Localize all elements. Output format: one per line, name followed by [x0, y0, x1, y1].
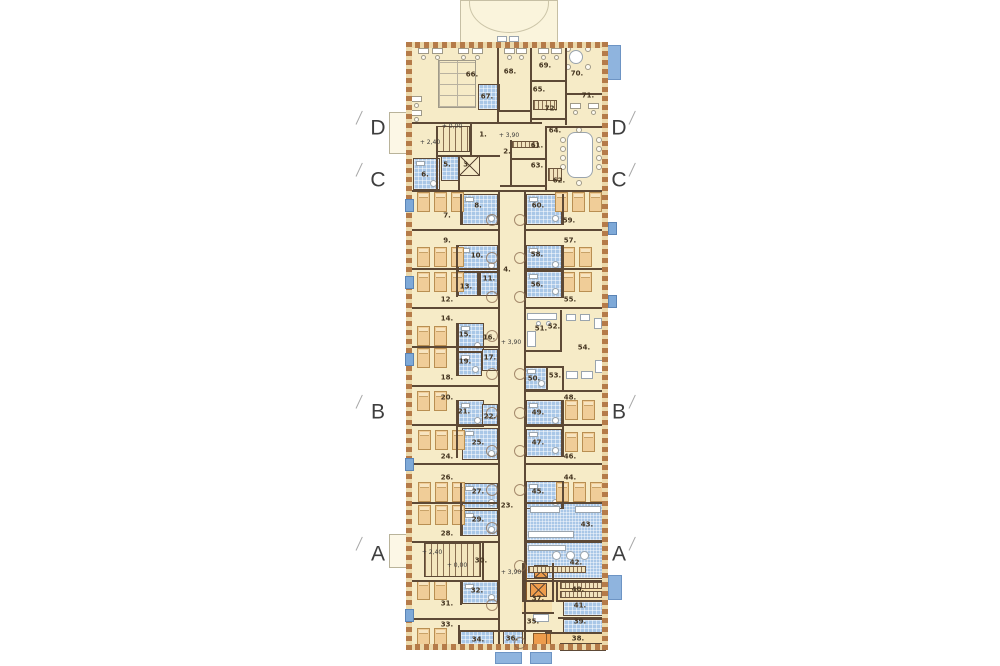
bed-pillow	[419, 249, 428, 253]
section-marker-a-right: A	[612, 544, 626, 565]
sink-fixture	[416, 161, 425, 166]
room-label-52: 52.	[548, 324, 560, 331]
bed-pillow	[591, 194, 600, 198]
furniture	[581, 371, 593, 379]
level-label: + 3,90	[501, 570, 521, 576]
bed	[417, 391, 430, 411]
wall	[545, 126, 547, 190]
bed-pillow	[564, 274, 573, 278]
room-label-47: 47.	[532, 440, 544, 447]
bed	[417, 348, 430, 368]
window	[405, 199, 414, 212]
toilet-fixture	[552, 447, 559, 454]
wall	[406, 580, 500, 582]
room-label-64: 64.	[549, 128, 561, 135]
room-label-70: 70.	[571, 71, 583, 78]
bed	[417, 192, 430, 212]
room-label-58: 58.	[531, 252, 543, 259]
room-label-1: 1.	[479, 132, 487, 139]
window	[405, 458, 414, 471]
room-label-29: 29.	[472, 517, 484, 524]
bed	[417, 247, 430, 267]
bed-pillow	[564, 249, 573, 253]
desk	[458, 48, 469, 54]
wall	[460, 483, 462, 536]
section-marker-b-right: B	[612, 402, 626, 423]
room-label-13: 13.	[460, 284, 472, 291]
exterior-wall-left	[406, 42, 412, 650]
desk	[570, 103, 581, 109]
wall	[526, 229, 608, 231]
room-label-12: 12.	[441, 297, 453, 304]
furniture	[530, 506, 560, 513]
level-label: + 2,40	[422, 550, 442, 556]
door-arc	[486, 522, 498, 534]
desk-chair	[435, 55, 440, 60]
wall	[497, 110, 530, 112]
section-marker-c-right: C	[611, 170, 626, 191]
room-label-9: 9.	[443, 238, 451, 245]
room-label-44: 44.	[564, 475, 576, 482]
room-label-6: 6.	[421, 172, 429, 179]
desk	[432, 48, 443, 54]
bed	[434, 192, 447, 212]
room-label-11: 11.	[483, 276, 495, 283]
room-label-54: 54.	[578, 345, 590, 352]
wall	[406, 424, 500, 426]
bed-pillow	[567, 434, 576, 438]
room-label-22: 22.	[484, 414, 496, 421]
wall	[406, 307, 500, 309]
wall	[460, 630, 552, 632]
door-arc	[486, 291, 498, 303]
balcony	[530, 652, 552, 664]
room-label-60: 60.	[532, 203, 544, 210]
sink-fixture	[465, 197, 474, 202]
room-label-8: 8.	[474, 203, 482, 210]
level-label: + 0,00	[447, 563, 467, 569]
toilet-fixture	[552, 417, 559, 424]
terrace	[389, 112, 407, 154]
room-label-62: 62.	[553, 178, 565, 185]
bed	[582, 400, 595, 420]
desk-chair	[573, 110, 578, 115]
bed	[435, 430, 448, 450]
wall	[406, 618, 500, 620]
desk	[411, 110, 422, 116]
room-label-61: 61.	[531, 143, 543, 150]
room-label-4: 4.	[503, 267, 511, 274]
furniture	[580, 314, 590, 321]
room-label-25: 25.	[472, 440, 484, 447]
wall	[526, 424, 608, 426]
bed-pillow	[419, 328, 428, 332]
bed	[434, 247, 447, 267]
room-label-24: 24.	[441, 454, 453, 461]
window	[608, 295, 617, 308]
room-label-19: 19.	[459, 359, 471, 366]
room-label-71: 71.	[582, 93, 594, 100]
door-arc	[514, 368, 526, 380]
wall	[524, 366, 562, 368]
bed-pillow	[437, 432, 446, 436]
room-label-59: 59.	[563, 218, 575, 225]
section-marker-a-left: A	[371, 544, 385, 565]
wall	[406, 122, 542, 124]
bed	[434, 348, 447, 368]
room-label-2: 2.	[503, 149, 511, 156]
room-label-15: 15.	[459, 332, 471, 339]
window	[405, 353, 414, 366]
balcony	[608, 575, 622, 600]
furniture	[527, 313, 557, 320]
bed	[565, 432, 578, 452]
desk	[538, 48, 549, 54]
room-label-34: 34.	[472, 637, 484, 644]
bed-pillow	[436, 328, 445, 332]
bed	[452, 505, 465, 525]
section-tick	[629, 163, 636, 177]
bed	[572, 192, 585, 212]
furniture	[528, 545, 566, 551]
section-marker-c-left: C	[370, 170, 385, 191]
room-label-65: 65.	[533, 87, 545, 94]
wall	[522, 612, 554, 614]
bed-pillow	[436, 274, 445, 278]
room-label-45: 45.	[532, 489, 544, 496]
bed	[435, 482, 448, 502]
room-label-21: 21.	[458, 409, 470, 416]
desk	[472, 48, 483, 54]
wall	[498, 190, 500, 648]
canopy-arch	[469, 0, 549, 33]
bed-pillow	[420, 432, 429, 436]
bed	[589, 192, 602, 212]
desk	[411, 96, 422, 102]
room-label-14: 14.	[441, 316, 453, 323]
wall	[497, 45, 499, 122]
desk	[551, 48, 562, 54]
bed-pillow	[419, 582, 428, 586]
room-label-49: 49.	[532, 410, 544, 417]
level-label: + 3,90	[499, 133, 519, 139]
room-label-42: 42.	[570, 560, 582, 567]
bed-pillow	[419, 274, 428, 278]
table-round	[552, 551, 561, 560]
wall	[406, 502, 500, 504]
bed-pillow	[436, 194, 445, 198]
level-label: + 3,90	[501, 340, 521, 346]
wall	[436, 155, 500, 157]
wall	[478, 272, 480, 296]
wall	[500, 185, 546, 187]
toilet-fixture	[472, 366, 479, 373]
bed	[434, 580, 447, 600]
round-table	[569, 50, 583, 64]
bed-pillow	[436, 350, 445, 354]
bed-pillow	[419, 350, 428, 354]
section-marker-d-left: D	[370, 118, 385, 139]
bed-pillow	[436, 630, 445, 634]
bed-pillow	[437, 507, 446, 511]
wall	[406, 541, 500, 543]
room-label-63: 63.	[531, 163, 543, 170]
wall	[562, 245, 564, 298]
desk-chair	[507, 55, 512, 60]
wall	[526, 390, 608, 392]
bed-pillow	[436, 582, 445, 586]
wall	[406, 346, 500, 348]
wall	[526, 502, 608, 504]
bed-pillow	[567, 402, 576, 406]
wall	[526, 580, 608, 582]
room-label-56: 56.	[531, 282, 543, 289]
desk-chair	[461, 55, 466, 60]
terrace	[389, 534, 407, 568]
room-label-3: 3.	[463, 162, 471, 169]
room-label-68: 68.	[504, 69, 516, 76]
room-label-26: 26.	[441, 475, 453, 482]
wall	[562, 366, 564, 390]
sink-fixture	[527, 369, 536, 374]
bed	[573, 482, 586, 502]
section-tick	[629, 395, 636, 409]
balcony	[607, 45, 621, 80]
exterior-wall-bottom	[406, 644, 608, 650]
room-label-35: 35.	[527, 619, 539, 626]
chair	[576, 180, 582, 186]
wall	[406, 385, 500, 387]
room-label-37: 37.	[532, 596, 544, 603]
bed-pillow	[419, 630, 428, 634]
door-arc	[486, 484, 498, 496]
sink-fixture	[465, 431, 474, 436]
bed-pillow	[436, 249, 445, 253]
section-tick	[356, 163, 363, 177]
wall	[562, 481, 564, 509]
furniture	[575, 506, 601, 513]
section-tick	[356, 395, 363, 409]
room-label-43: 43.	[581, 522, 593, 529]
room-label-38: 38.	[572, 636, 584, 643]
bed-pillow	[581, 274, 590, 278]
desk-chair	[519, 55, 524, 60]
level-label: + 2,40	[420, 140, 440, 146]
chair	[560, 155, 566, 161]
door-arc	[514, 291, 526, 303]
furniture	[527, 331, 536, 347]
room-label-66: 66.	[466, 72, 478, 79]
bed	[434, 326, 447, 346]
bed-pillow	[437, 484, 446, 488]
wall	[436, 126, 438, 190]
bed-pillow	[575, 484, 584, 488]
desk-chair	[554, 55, 559, 60]
room-label-39: 39.	[574, 619, 586, 626]
wall	[530, 118, 565, 120]
room-label-50: 50.	[528, 376, 540, 383]
desk-cluster	[438, 60, 476, 108]
meeting-table	[567, 132, 593, 178]
room-label-30: 30.	[475, 558, 487, 565]
section-tick	[629, 537, 636, 551]
bed-pillow	[574, 194, 583, 198]
bed-pillow	[584, 402, 593, 406]
desk	[418, 48, 429, 54]
desk-chair	[414, 103, 419, 108]
door-arc	[486, 368, 498, 380]
room-label-7: 7.	[443, 213, 451, 220]
room-label-18: 18.	[441, 375, 453, 382]
room-label-69: 69.	[539, 63, 551, 70]
wall	[560, 310, 562, 350]
room-label-41: 41.	[574, 603, 586, 610]
bed	[418, 430, 431, 450]
window	[405, 276, 414, 289]
furniture	[566, 371, 578, 379]
door-arc	[514, 252, 526, 264]
room-label-40: 40.	[572, 587, 584, 594]
room-label-46: 46.	[564, 454, 576, 461]
balcony	[495, 652, 522, 664]
exterior-wall-top	[406, 42, 608, 48]
desk-chair	[421, 55, 426, 60]
wall	[406, 190, 608, 192]
door-arc	[514, 484, 526, 496]
door-arc	[486, 599, 498, 611]
bed	[452, 430, 465, 450]
room-label-5: 5.	[443, 162, 451, 169]
floor-plan-canvas: 1.2.3.4.5.6.7.8.9.10.11.12.13.14.15.16.1…	[0, 0, 1000, 666]
room-label-67: 67.	[481, 94, 493, 101]
room-label-28: 28.	[441, 531, 453, 538]
room-label-16: 16.	[483, 335, 495, 342]
wall	[556, 580, 558, 602]
desk	[588, 103, 599, 109]
wall	[460, 581, 462, 605]
bed	[418, 482, 431, 502]
bed-pillow	[581, 249, 590, 253]
door-arc	[514, 445, 526, 457]
room-label-36: 36.	[506, 636, 518, 643]
window	[608, 222, 617, 235]
wall	[530, 80, 565, 82]
room-label-32: 32.	[471, 588, 483, 595]
sink-fixture	[529, 403, 538, 408]
furniture	[594, 318, 602, 329]
room-label-17: 17.	[484, 355, 496, 362]
wall	[510, 158, 545, 160]
furniture	[528, 531, 574, 538]
room-label-31: 31.	[441, 601, 453, 608]
wall	[526, 463, 608, 465]
bed-pillow	[420, 484, 429, 488]
room-label-53: 53.	[549, 373, 561, 380]
room-label-10: 10.	[471, 253, 483, 260]
bed	[435, 505, 448, 525]
wall	[456, 245, 458, 297]
room-label-20: 20.	[441, 395, 453, 402]
toilet-fixture	[552, 215, 559, 222]
desk-chair	[591, 110, 596, 115]
toilet-fixture	[552, 261, 559, 268]
room-label-33: 33.	[441, 622, 453, 629]
toilet-fixture	[474, 417, 481, 424]
bed	[579, 272, 592, 292]
bed-pillow	[584, 434, 593, 438]
section-marker-b-left: B	[371, 402, 385, 423]
chair	[585, 64, 591, 70]
bed	[417, 580, 430, 600]
room-label-48: 48.	[564, 395, 576, 402]
wall	[546, 366, 548, 390]
wall	[460, 194, 462, 225]
wall	[406, 463, 500, 465]
bed-pillow	[592, 484, 601, 488]
shelving-unit	[528, 566, 586, 573]
section-tick	[629, 111, 636, 125]
desk	[516, 48, 527, 54]
wall	[406, 268, 500, 270]
exterior-wall-right	[602, 42, 608, 650]
wall	[552, 563, 554, 600]
sink-fixture	[529, 432, 538, 437]
bed	[452, 482, 465, 502]
bed	[451, 192, 464, 212]
toilet-fixture	[552, 288, 559, 295]
room-label-55: 55.	[564, 297, 576, 304]
wall	[526, 268, 608, 270]
bed-pillow	[419, 393, 428, 397]
bed	[417, 272, 430, 292]
door-arc	[514, 214, 526, 226]
room-label-57: 57.	[564, 238, 576, 245]
wall	[458, 155, 460, 190]
furniture	[566, 314, 576, 321]
wall	[530, 45, 532, 122]
section-tick	[356, 537, 363, 551]
bed	[582, 432, 595, 452]
room-label-27: 27.	[472, 489, 484, 496]
wall	[456, 323, 458, 376]
door-arc	[486, 445, 498, 457]
wall	[526, 307, 608, 309]
wall	[406, 229, 500, 231]
bed	[434, 272, 447, 292]
level-label: + 0,00	[442, 124, 462, 130]
desk-chair	[475, 55, 480, 60]
section-tick	[356, 111, 363, 125]
door-arc	[486, 214, 498, 226]
room-label-23: 23.	[501, 503, 513, 510]
room-label-72: 72.	[545, 106, 557, 113]
window	[405, 609, 414, 622]
bed	[579, 247, 592, 267]
door-arc	[486, 252, 498, 264]
chair	[560, 146, 566, 152]
room-label-51: 51.	[535, 326, 547, 333]
chair	[560, 137, 566, 143]
desk-chair	[541, 55, 546, 60]
door-arc	[514, 407, 526, 419]
bed-pillow	[419, 194, 428, 198]
sink-fixture	[529, 274, 538, 279]
bed-pillow	[420, 507, 429, 511]
wall	[470, 122, 472, 155]
wall	[562, 400, 564, 457]
wall	[565, 45, 567, 125]
section-marker-d-right: D	[611, 118, 626, 139]
